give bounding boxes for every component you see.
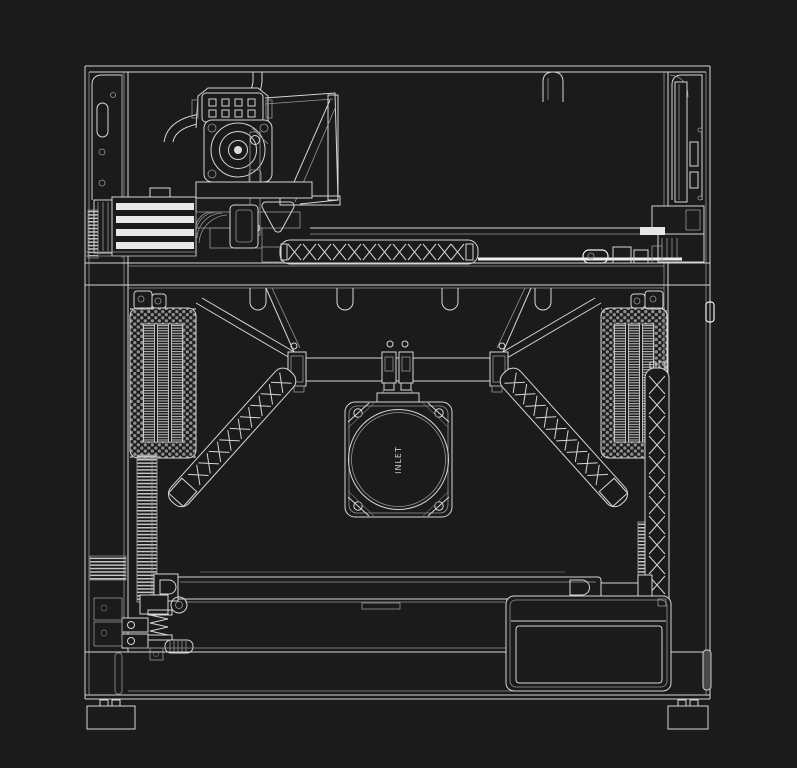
funnel-panel-right — [497, 288, 601, 358]
toolhead-assembly — [164, 72, 563, 262]
x-back-extrusion — [310, 227, 665, 235]
funnel-panel-left — [196, 288, 300, 358]
bed-inlet-fan: INLET — [345, 393, 452, 517]
left-column-lower-details — [90, 556, 126, 646]
exhaust-grille-left — [130, 308, 196, 458]
grille-clips-right — [631, 291, 663, 309]
z-belt-tensioner — [122, 595, 193, 660]
printer-wireframe-canvas: INLET — [0, 0, 797, 768]
cable-chain-horizontal — [280, 240, 478, 264]
right-edge-hinge — [703, 302, 714, 690]
ab-stepper-motor — [88, 188, 196, 258]
center-crossbar — [288, 341, 508, 392]
grille-clips-left — [134, 291, 166, 309]
printer-technical-drawing: INLET — [0, 0, 797, 768]
foot-left — [87, 700, 135, 729]
deck-hangers — [250, 288, 551, 310]
foot-right — [668, 700, 708, 729]
electronics-enclosure — [506, 596, 671, 691]
fan-inlet-label: INLET — [394, 446, 403, 474]
